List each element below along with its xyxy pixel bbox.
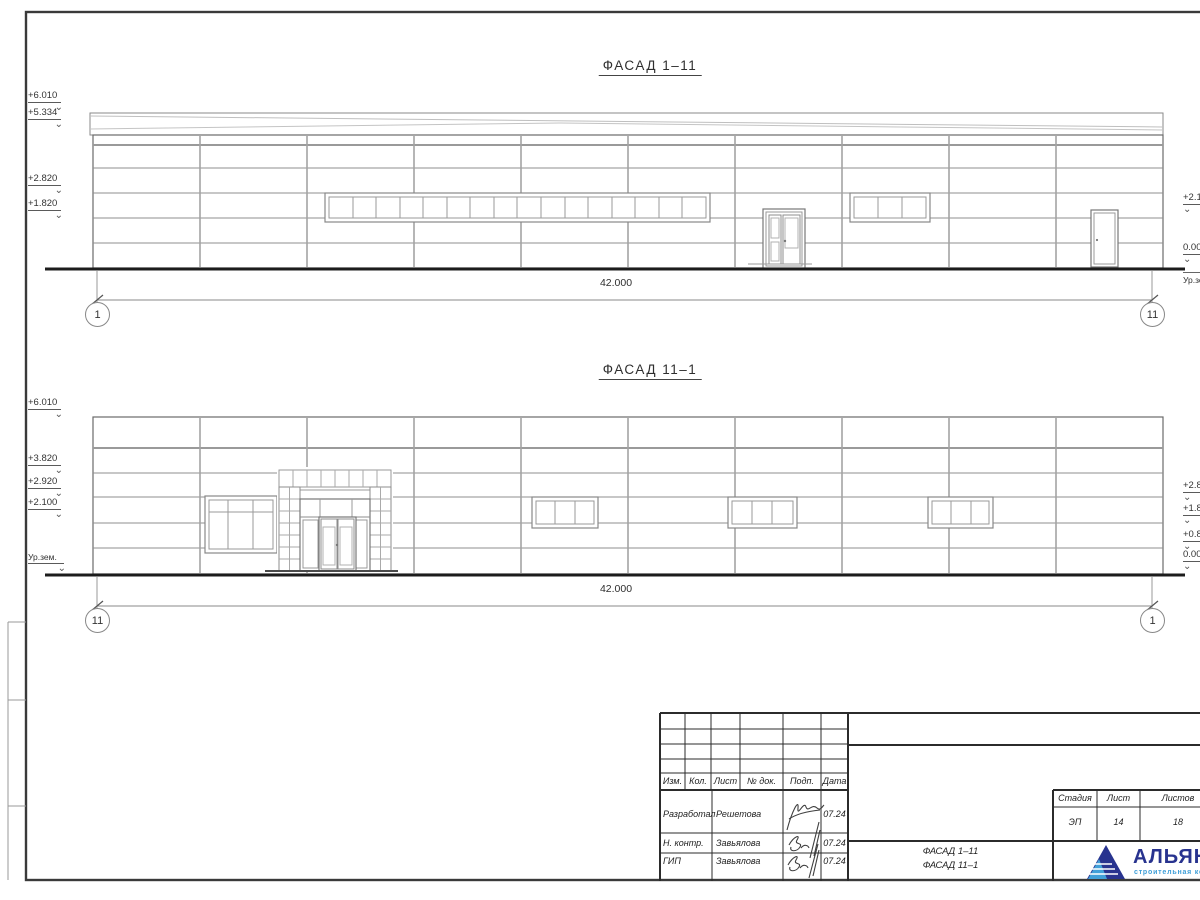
tiled-pilaster-right [370, 487, 391, 571]
titleblock-header-list: Лист [711, 776, 740, 786]
tiled-pilaster-left [279, 487, 300, 571]
sheets-value: 18 [1140, 817, 1200, 827]
elevation-mark: 0.000 ⌄ [1183, 242, 1200, 255]
elevation-arrow-icon: ⌄ [55, 186, 63, 195]
drawing-sheet: ФАСАД 1–11 +6.010 ⌄ +5.334 ⌄ +2.820 ⌄ +1… [0, 0, 1200, 900]
titleblock-row-role: Разработал [663, 809, 715, 819]
titleblock-header-doc: № док. [740, 776, 783, 786]
ground-level-mark: Ур.зем. ⌄ [28, 551, 64, 564]
elevation-arrow-icon: ⌄ [1183, 516, 1191, 525]
elevation-mark: 0.000 ⌄ [1183, 549, 1200, 562]
titleblock-row-date: 07.24 [821, 856, 848, 866]
doc-title-line1: ФАСАД 1–11 [848, 846, 1053, 857]
window-large [205, 496, 277, 553]
elevation-mark: +5.334 ⌄ [28, 107, 61, 120]
elevation-mark: +6.010 ⌄ [28, 90, 61, 103]
elevation-mark: +2.920 ⌄ [28, 476, 61, 489]
stage-value: ЭП [1053, 817, 1097, 827]
elevation-mark: +1.820 ⌄ [1183, 503, 1200, 516]
titleblock-row-role: ГИП [663, 856, 681, 866]
window-3pane [532, 497, 598, 528]
elevation-arrow-icon: ⌄ [58, 564, 66, 573]
alliance-logo-text: АЛЬЯНС [1133, 846, 1200, 869]
titleblock-header-data: Дата [821, 776, 848, 786]
doc-title-line2: ФАСАД 11–1 [848, 860, 1053, 871]
facade1-title: ФАСАД 1–11 [599, 58, 702, 76]
signature-strokes [787, 805, 824, 878]
window-3pane [728, 497, 797, 528]
titleblock-header-kol: Кол. [685, 776, 711, 786]
sheet-label: Лист [1097, 793, 1140, 803]
single-door [1091, 210, 1118, 267]
facade2-title: ФАСАД 11–1 [599, 362, 702, 380]
elevation-mark: +2.820 ⌄ [1183, 480, 1200, 493]
ribbon-window [325, 193, 710, 222]
storefront-glazing [300, 499, 370, 571]
entrance-portal [265, 467, 398, 571]
elevation-arrow-icon: ⌄ [55, 410, 63, 419]
drawing-linework [0, 0, 1200, 900]
elevation-mark: +2.100 ⌄ [28, 497, 61, 510]
titleblock-row-name: Завьялова [716, 838, 760, 848]
ground-level-label: Ур.зем. [1183, 272, 1200, 285]
axis-bubble: 1 [1140, 608, 1165, 633]
elevation-arrow-icon: ⌄ [55, 510, 63, 519]
overall-dimension: 42.000 [600, 277, 632, 289]
titleblock-row-name: Решетова [716, 809, 761, 819]
alliance-logo-tagline: строительная компания [1134, 869, 1200, 876]
titleblock-row-role: Н. контр. [663, 838, 704, 848]
elevation-arrow-icon: ⌄ [1183, 255, 1191, 264]
overall-dimension: 42.000 [600, 583, 632, 595]
titleblock-row-date: 07.24 [821, 809, 848, 819]
elevation-mark: +2.100 ⌄ [1183, 192, 1200, 205]
titleblock-row-date: 07.24 [821, 838, 848, 848]
sheet-value: 14 [1097, 817, 1140, 827]
elevation-arrow-icon: ⌄ [55, 211, 63, 220]
elevation-arrow-icon: ⌄ [55, 120, 63, 129]
elevation-mark: +1.820 ⌄ [28, 198, 61, 211]
elevation-mark: +2.820 ⌄ [28, 173, 61, 186]
stage-label: Стадия [1053, 793, 1097, 803]
elevation-mark: +0.820 ⌄ [1183, 529, 1200, 542]
elevation-arrow-icon: ⌄ [1183, 562, 1191, 571]
sheets-label: Листов [1140, 793, 1200, 803]
axis-bubble: 11 [1140, 302, 1165, 327]
axis-bubble: 11 [85, 608, 110, 633]
alliance-logo-icon [1086, 844, 1126, 882]
elevation-arrow-icon: ⌄ [55, 466, 63, 475]
elevation-mark: +6.010 ⌄ [28, 397, 61, 410]
elevation-arrow-icon: ⌄ [1183, 205, 1191, 214]
window-3pane [928, 497, 993, 528]
titleblock-row-name: Завьялова [716, 856, 760, 866]
window-3pane [850, 193, 930, 222]
facade-11-1-drawing [45, 417, 1185, 611]
axis-bubble: 1 [85, 302, 110, 327]
elevation-mark: +3.820 ⌄ [28, 453, 61, 466]
titleblock-header-izm: Изм. [660, 776, 685, 786]
elevation-arrow-icon: ⌄ [1183, 493, 1191, 502]
titleblock-header-podp: Подп. [783, 776, 821, 786]
